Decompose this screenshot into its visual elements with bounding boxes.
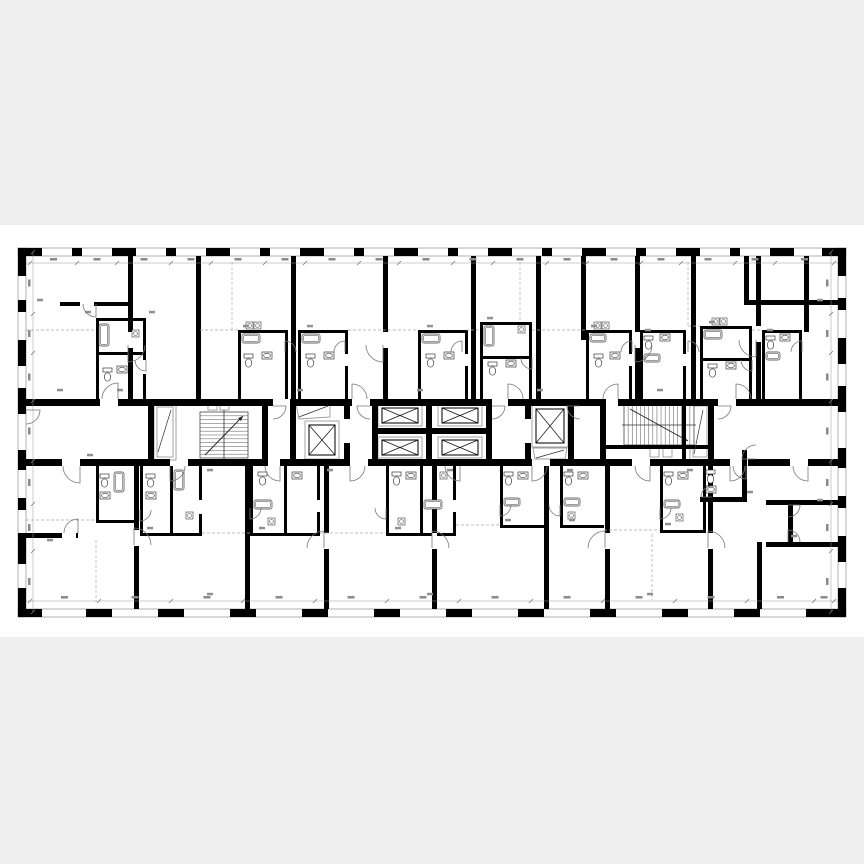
dimension-text [747, 491, 753, 494]
toilet-icon [306, 354, 315, 358]
dimension-text [657, 389, 663, 392]
dimension-text [329, 258, 336, 261]
wall [766, 500, 840, 505]
wall [700, 326, 752, 329]
appliance-icon [568, 512, 575, 519]
dimension-text [348, 596, 355, 599]
door-opening [432, 533, 437, 549]
shaft-diagonal [158, 410, 171, 452]
wall [650, 459, 730, 466]
door-opening [317, 500, 320, 512]
door-swing [366, 345, 383, 362]
door-swing [350, 466, 365, 481]
door-swing [549, 505, 560, 516]
dimension-text [752, 258, 759, 261]
dimension-text [47, 539, 53, 542]
wall [418, 330, 421, 399]
wall [148, 399, 154, 466]
wall [640, 330, 643, 399]
wall [118, 399, 273, 406]
dimension-text [487, 317, 493, 320]
wall [420, 466, 423, 536]
wall [394, 248, 418, 256]
door-swing [352, 384, 367, 399]
dimension-text [327, 469, 333, 472]
appliance-icon [676, 514, 683, 521]
dimension-text [791, 535, 797, 538]
toilet-icon [103, 368, 112, 372]
wall [140, 466, 143, 536]
appliance-icon [132, 330, 139, 337]
dimension-text [28, 428, 31, 435]
dimension-text [188, 258, 195, 261]
wall [635, 256, 640, 399]
dimension-text [647, 593, 653, 596]
wall [206, 248, 230, 256]
dimension-text [28, 330, 31, 337]
dimension-text [564, 596, 571, 599]
wall [383, 256, 388, 399]
wall [568, 399, 574, 466]
toilet-icon [427, 359, 433, 367]
dimension-text [420, 596, 427, 599]
toilet-icon [504, 472, 513, 476]
wall [446, 609, 472, 617]
wall [96, 520, 136, 523]
wall [245, 466, 250, 609]
wall [298, 330, 301, 399]
door-swing [588, 531, 605, 548]
dimension-text [537, 389, 543, 392]
wall [590, 609, 616, 617]
appliance-icon [440, 472, 447, 479]
door-opening [605, 533, 610, 549]
wall [636, 248, 646, 256]
dimension-text [207, 469, 213, 472]
door-opening [324, 533, 329, 549]
toilet-icon [594, 354, 603, 358]
dimension-text [826, 524, 829, 531]
wall [660, 530, 706, 533]
wall [662, 609, 688, 617]
wall [230, 609, 256, 617]
dimension-text [826, 578, 829, 585]
wall [550, 459, 632, 466]
door-swing [334, 341, 345, 352]
wall [96, 466, 99, 523]
dimension-text [307, 325, 313, 328]
wall [344, 443, 350, 466]
wall [112, 248, 136, 256]
door-swing [265, 466, 280, 481]
dimension-text [687, 469, 693, 472]
wall [18, 388, 26, 414]
dimension-text [204, 596, 211, 599]
dimension-text [28, 479, 31, 486]
dimension-text [658, 258, 665, 261]
wall [749, 326, 752, 399]
door-swing [375, 508, 386, 519]
wall [196, 256, 201, 399]
toilet-icon [709, 369, 715, 377]
dimension-text [492, 596, 499, 599]
wall [744, 256, 749, 300]
dimension-text [636, 596, 643, 599]
wall [804, 256, 809, 332]
wall [374, 609, 400, 617]
wall [808, 459, 838, 466]
wall [682, 399, 686, 466]
letterbox-band [0, 0, 864, 225]
toilet-icon [595, 359, 601, 367]
toilet-icon [644, 336, 653, 340]
dimension-text [28, 280, 31, 287]
wall [762, 330, 765, 399]
wall [806, 609, 822, 617]
dimension-text [297, 389, 303, 392]
wall [600, 399, 606, 466]
wall [838, 338, 846, 364]
wall [480, 322, 483, 399]
wall [586, 330, 632, 333]
dimension-text [28, 374, 31, 381]
plan-image-container [0, 0, 864, 864]
dimension-text [50, 258, 57, 261]
wall [72, 248, 82, 256]
door-swing [357, 406, 370, 419]
door-opening [199, 500, 202, 514]
wall [166, 248, 176, 256]
wall [260, 248, 270, 256]
dimension-text [826, 280, 829, 287]
shaft-diagonal [299, 406, 328, 417]
dimension-text [611, 258, 618, 261]
wall [188, 459, 262, 466]
wall [586, 330, 589, 399]
dimension-text [817, 299, 823, 302]
appliance-icon [254, 322, 261, 329]
wall [480, 322, 532, 325]
wall [480, 356, 532, 359]
wall [26, 399, 100, 406]
bathtub-icon [766, 352, 780, 360]
dimension-text [235, 258, 242, 261]
dimension-text [505, 519, 511, 522]
wall [18, 340, 26, 366]
wall [291, 399, 352, 406]
door-swing [603, 384, 618, 399]
wall [525, 443, 531, 466]
door-opening [465, 354, 468, 366]
shaft-outline [157, 407, 173, 457]
dimension-text [470, 258, 477, 261]
door-opening [629, 354, 632, 366]
toilet-icon [258, 472, 267, 476]
wall [170, 466, 173, 536]
wall [18, 300, 26, 312]
wall [708, 399, 714, 466]
dimension-text [767, 329, 773, 332]
wall [618, 399, 718, 406]
toilet-icon [146, 474, 155, 478]
wall [799, 330, 802, 399]
door-swing [102, 383, 118, 399]
toilet-icon [245, 359, 251, 367]
dimension-text [376, 258, 383, 261]
wall [560, 525, 604, 528]
wall [158, 609, 184, 617]
toilet-icon [259, 477, 265, 485]
appliance-icon [186, 512, 193, 519]
wall [18, 498, 26, 510]
wall [262, 399, 268, 466]
dimension-text [569, 519, 575, 522]
dimension-text [567, 469, 573, 472]
wall [300, 248, 324, 256]
wall [734, 609, 760, 617]
wall [544, 466, 549, 609]
door-opening [635, 332, 640, 348]
door-opening [383, 332, 388, 348]
wall [488, 248, 512, 256]
toilet-icon [104, 373, 110, 381]
dimension-text [282, 258, 289, 261]
appliance-icon [602, 322, 609, 329]
door-swing [718, 406, 731, 419]
toilet-icon [564, 472, 573, 476]
dimension-text [564, 258, 571, 261]
toilet-icon [706, 470, 715, 474]
toilet-icon [489, 367, 495, 375]
bathtub-icon [664, 500, 680, 508]
letterbox-band [0, 637, 864, 864]
dimension-text [777, 596, 784, 599]
dimension-text [665, 523, 671, 526]
dimension-text [826, 479, 829, 486]
wall [18, 248, 26, 276]
dimension-text [447, 469, 453, 472]
wall [298, 330, 348, 333]
wall [18, 450, 26, 470]
dimension-text [141, 258, 148, 261]
shaft-outline [650, 448, 659, 457]
dimension-text [705, 258, 712, 261]
wall [518, 609, 544, 617]
wall [500, 525, 544, 528]
dimension-text [591, 325, 597, 328]
toilet-icon [101, 479, 107, 487]
plan-page [0, 0, 864, 864]
wall [471, 256, 476, 399]
window-glazing [18, 609, 846, 617]
wall [96, 352, 146, 355]
toilet-icon [505, 477, 511, 485]
wall [508, 399, 602, 406]
door-opening [453, 500, 456, 512]
wall [529, 322, 532, 399]
toilet-icon [665, 477, 671, 485]
dimension-text [709, 321, 715, 324]
door-swing [273, 406, 286, 419]
toilet-icon [645, 341, 651, 349]
wall [703, 466, 706, 533]
door-swing [739, 340, 756, 357]
door-opening [62, 533, 76, 538]
toilet-icon [707, 475, 713, 483]
window-glazing [18, 248, 846, 256]
door-swing [451, 341, 462, 352]
wall [290, 399, 296, 466]
dimension-text [427, 593, 433, 596]
wall [838, 448, 846, 468]
toilet-icon [488, 362, 497, 366]
dimension-text [801, 258, 808, 261]
toilet-icon [307, 359, 313, 367]
wall [128, 256, 133, 399]
dimension-text [259, 527, 265, 530]
wall [80, 459, 170, 466]
dimension-text [28, 578, 31, 585]
floor-plan-svg [0, 0, 864, 864]
wall [250, 466, 253, 536]
wall [748, 459, 790, 466]
wall [582, 248, 606, 256]
toilet-icon [565, 477, 571, 485]
wall [766, 542, 840, 547]
wall [284, 466, 287, 536]
wall [386, 466, 389, 536]
dimension-text [94, 258, 101, 261]
wall [770, 248, 794, 256]
appliance-icon [398, 518, 405, 525]
dimension-text [57, 389, 63, 392]
dimension-text [395, 527, 401, 530]
wall [96, 318, 146, 321]
dimension-text [61, 596, 68, 599]
wall [838, 588, 846, 617]
wall [96, 318, 99, 399]
wall [372, 428, 492, 434]
wall [744, 300, 843, 305]
dimension-text [243, 325, 249, 328]
door-swing [736, 384, 751, 399]
wall [700, 497, 746, 502]
wall [691, 256, 696, 399]
toilet-icon [767, 341, 773, 349]
dimension-text [423, 258, 430, 261]
dimension-text [276, 596, 283, 599]
door-opening [708, 533, 713, 549]
wall [302, 609, 328, 617]
appliance-icon [518, 326, 525, 333]
toilet-icon [244, 354, 253, 358]
wall [730, 248, 740, 256]
bathtub-icon [590, 334, 606, 342]
wall [460, 459, 532, 466]
wall [418, 330, 468, 333]
wall [757, 542, 762, 609]
shaft-outline [663, 448, 672, 457]
wall [18, 538, 26, 564]
dimension-text [207, 593, 213, 596]
wall [285, 330, 288, 399]
door-swing [635, 466, 650, 481]
toilet-icon [708, 364, 717, 368]
wall [536, 256, 541, 399]
wall [700, 326, 703, 399]
door-opening [683, 354, 686, 366]
toilet-icon [147, 479, 153, 487]
wall [838, 536, 846, 562]
dimension-text [87, 454, 93, 457]
wall [581, 256, 586, 340]
wall [788, 500, 793, 544]
door-swing [492, 406, 505, 419]
dimension-text [708, 596, 715, 599]
wall [448, 248, 458, 256]
door-swing [793, 466, 808, 481]
wall [700, 358, 752, 361]
door-swing [63, 466, 80, 483]
dimension-text [149, 311, 155, 314]
wall [736, 399, 838, 406]
dimension-text [826, 428, 829, 435]
wall [86, 609, 112, 617]
wall [18, 588, 26, 617]
dimension-text [28, 524, 31, 531]
door-swing [64, 519, 78, 533]
wall [560, 466, 563, 528]
door-opening [143, 360, 146, 374]
dimension-text [427, 325, 433, 328]
appliance-icon [268, 518, 275, 525]
toilet-icon [393, 477, 399, 485]
wall [542, 248, 552, 256]
dimension-text [517, 258, 524, 261]
dimension-text [826, 330, 829, 337]
wall [500, 466, 503, 528]
dimension-text [826, 374, 829, 381]
door-opening [345, 354, 348, 366]
toilet-icon [100, 474, 109, 478]
toilet-icon [664, 472, 673, 476]
wall [525, 399, 531, 419]
dimension-text [147, 527, 153, 530]
bathtub-icon [504, 498, 520, 506]
wall [344, 399, 350, 419]
dimension-text [132, 596, 139, 599]
wall [838, 248, 846, 276]
wall [143, 318, 146, 399]
wall [838, 386, 846, 412]
toilet-icon [392, 472, 401, 476]
wall [291, 256, 296, 399]
wall [238, 330, 288, 333]
dimension-text [817, 499, 823, 502]
shaft-diagonal [536, 450, 564, 458]
dimension-text [37, 299, 43, 302]
toilet-icon [766, 336, 775, 340]
wall [238, 330, 241, 399]
wall [354, 248, 364, 256]
door-opening [756, 326, 761, 342]
toilet-icon [426, 354, 435, 358]
door-opening [134, 530, 139, 546]
door-opening [80, 302, 94, 306]
dimension-text [821, 596, 828, 599]
wall [676, 248, 700, 256]
dimension-text [645, 329, 651, 332]
